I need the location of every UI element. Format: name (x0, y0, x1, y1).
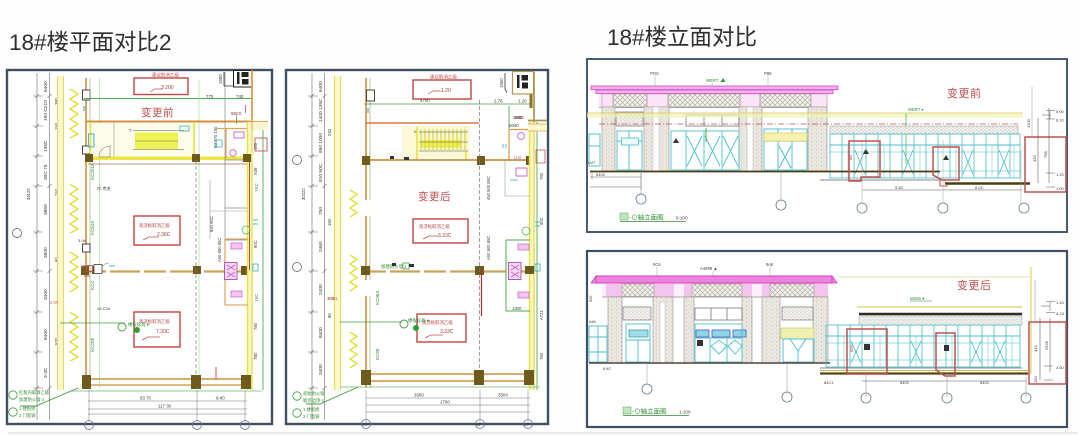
svg-text:910 50C: 910 50C (318, 163, 324, 182)
svg-text:1-6: 1-6 (475, 423, 480, 427)
svg-text:2400: 2400 (318, 284, 324, 295)
svg-text:A.10: A.10 (1056, 311, 1065, 316)
svg-text:变更后: 变更后 (957, 278, 992, 292)
svg-text:8:100: 8:100 (676, 216, 688, 221)
svg-text:A50 900 85C: A50 900 85C (486, 236, 491, 260)
svg-text:150 C210: 150 C210 (43, 100, 49, 121)
svg-text:5.00: 5.00 (1056, 109, 1065, 114)
svg-text:3850: 3850 (43, 204, 49, 215)
svg-text:9-8C: 9-8C (895, 185, 904, 190)
svg-text:780: 780 (253, 322, 258, 330)
svg-text:450 900 85C: 450 900 85C (486, 176, 491, 200)
svg-text:1200: 1200 (1026, 118, 1031, 128)
svg-text:现浇板取消乙级: 现浇板取消乙级 (419, 223, 450, 230)
svg-text:9-80: 9-80 (216, 396, 225, 401)
svg-text:1.20: 1.20 (518, 99, 527, 104)
svg-text:3504: 3504 (498, 393, 508, 398)
svg-text:B3 870 150: B3 870 150 (213, 126, 218, 148)
svg-text:1500: 1500 (499, 78, 504, 88)
svg-text:3400: 3400 (318, 364, 324, 375)
svg-text:KC2018: KC2018 (90, 163, 95, 180)
svg-text:740: 740 (236, 94, 244, 99)
svg-text:加建防火墙-1: 加建防火墙-1 (19, 396, 45, 403)
svg-text:KC208: KC208 (90, 338, 95, 352)
svg-text:A38: A38 (253, 167, 258, 175)
svg-text:(15): (15) (514, 155, 522, 160)
svg-text:150: 150 (327, 218, 332, 226)
svg-text:6400: 6400 (596, 172, 606, 177)
svg-text:1.10: 1.10 (1056, 300, 1065, 305)
svg-text:770: 770 (206, 94, 214, 99)
svg-text:红框内取消乙级: 红框内取消乙级 (19, 389, 50, 396)
svg-text:初始防火墙: 初始防火墙 (303, 390, 325, 397)
svg-text:LMT: LMT (588, 161, 596, 165)
svg-text:P88: P88 (764, 71, 772, 76)
svg-text:WERT: WERT (706, 78, 719, 83)
svg-text:758: 758 (1043, 151, 1048, 158)
svg-text:840C: 840C (980, 380, 990, 385)
svg-text:1.20: 1.20 (1056, 172, 1065, 177)
svg-text:KC4: KC4 (90, 281, 95, 290)
svg-text:39122: 39122 (26, 188, 31, 200)
svg-text:90: 90 (327, 313, 332, 318)
svg-text:750: 750 (539, 172, 544, 180)
svg-text:750: 750 (318, 207, 324, 215)
svg-text:楼板标高 ▾: 楼板标高 ▾ (408, 317, 429, 324)
svg-text:M256 ▾: M256 ▾ (910, 296, 924, 301)
svg-text:建议取消乙级: 建议取消乙级 (152, 72, 179, 79)
svg-text:1:100: 1:100 (679, 410, 691, 415)
svg-text:3600: 3600 (43, 247, 49, 258)
svg-text:7B0: 7B0 (253, 352, 258, 360)
svg-text:现浇板取消乙级: 现浇板取消乙级 (139, 222, 170, 229)
svg-text:2 门窗调: 2 门窗调 (303, 413, 319, 420)
svg-text:8400: 8400 (900, 380, 910, 385)
svg-text:板坯边顶-1: 板坯边顶-1 (303, 397, 325, 404)
svg-text:1.00: 1.00 (1056, 186, 1065, 191)
svg-text:A4B: A4B (589, 320, 596, 324)
svg-text:变更后: 变更后 (418, 190, 451, 203)
svg-text:8400: 8400 (43, 329, 49, 340)
svg-text:1500: 1500 (514, 115, 524, 120)
svg-text:5040: 5040 (509, 123, 519, 128)
svg-text:18#楼立面对比: 18#楼立面对比 (607, 25, 757, 50)
svg-text:950 1000: 950 1000 (318, 133, 324, 153)
svg-text:3500: 3500 (414, 393, 424, 398)
svg-text:-⊙轴立面图: -⊙轴立面图 (629, 213, 664, 222)
svg-text:2 门窗调: 2 门窗调 (19, 412, 35, 419)
svg-text:1500: 1500 (218, 74, 223, 84)
svg-text:POS: POS (650, 71, 659, 76)
svg-text:30C 75: 30C 75 (43, 164, 49, 180)
svg-text:9o8: 9o8 (766, 262, 774, 267)
svg-text:2460: 2460 (318, 241, 324, 252)
svg-text:3.33C: 3.33C (438, 233, 452, 239)
svg-text:750: 750 (539, 352, 544, 360)
svg-text:-⊙轴立面图: -⊙轴立面图 (632, 407, 667, 416)
svg-text:1-5: 1-5 (362, 423, 367, 427)
svg-text:2.0#: 2.0# (50, 300, 59, 305)
svg-text:8 9C: 8 9C (603, 367, 611, 371)
svg-text:WERT ▾: WERT ▾ (908, 107, 923, 112)
svg-text:1.20: 1.20 (441, 88, 451, 94)
svg-text:93 70: 93 70 (140, 396, 152, 401)
svg-text:150: 150 (1033, 376, 1038, 383)
svg-text:1700: 1700 (440, 400, 450, 405)
svg-text:1 楼板修: 1 楼板修 (19, 405, 36, 412)
svg-text:1 楼板修: 1 楼板修 (303, 406, 320, 413)
svg-text:7: 7 (129, 128, 132, 133)
svg-text:117 30: 117 30 (158, 404, 172, 409)
svg-text:3.0#: 3.0# (78, 238, 87, 243)
svg-text:8-0C: 8-0C (975, 185, 984, 190)
svg-text:K: K (414, 129, 417, 134)
svg-text:7.30C: 7.30C (156, 329, 170, 335)
svg-text:84C1: 84C1 (824, 380, 834, 385)
svg-text:3-3C: 3-3C (43, 367, 49, 378)
svg-text:1400 135C: 1400 135C (318, 98, 324, 122)
svg-text:19-C2#: 19-C2# (97, 306, 111, 311)
svg-text:6400: 6400 (43, 81, 49, 92)
svg-text:变更前: 变更前 (947, 86, 982, 100)
svg-text:2928: 2928 (1044, 340, 1049, 350)
svg-text:3400: 3400 (43, 289, 49, 300)
svg-text:A50 900 85C: A50 900 85C (217, 238, 222, 262)
svg-text:3.33C: 3.33C (440, 329, 454, 335)
svg-text:楼板标高 ▾: 楼板标高 ▾ (128, 321, 149, 328)
svg-text:2.36C: 2.36C (157, 232, 171, 238)
svg-text:3.60: 3.60 (1056, 365, 1065, 370)
svg-text:8400: 8400 (318, 327, 324, 338)
svg-text:Y6C: Y6C (254, 294, 259, 302)
svg-text:1-7: 1-7 (524, 423, 529, 427)
svg-text:作-考虑: 作-考虑 (97, 185, 110, 191)
svg-text:2.0d1: 2.0d1 (327, 296, 338, 301)
svg-text:500: 500 (589, 296, 593, 302)
svg-text:1300: 1300 (512, 306, 522, 311)
svg-text:433: 433 (1033, 345, 1038, 352)
svg-text:KC98: KC98 (375, 348, 380, 360)
svg-text:M2: M2 (849, 155, 853, 160)
svg-text:850 90C: 850 90C (209, 216, 214, 232)
svg-text:建议取消乙级: 建议取消乙级 (430, 74, 457, 81)
svg-text:3 200: 3 200 (161, 85, 174, 91)
svg-text:YKC: YKC (254, 183, 259, 192)
svg-text:KC363: KC363 (375, 291, 380, 305)
svg-text:90C: 90C (539, 217, 544, 225)
svg-text:135C: 135C (43, 140, 49, 152)
svg-text:6.10: 6.10 (1056, 118, 1065, 123)
svg-text:KC610: KC610 (90, 221, 95, 235)
svg-text:2.76: 2.76 (494, 99, 503, 104)
svg-text:变更前: 变更前 (141, 106, 174, 119)
svg-text:6400: 6400 (318, 81, 324, 92)
svg-text:150: 150 (253, 142, 258, 150)
svg-text:4700: 4700 (420, 98, 430, 103)
svg-text:30222: 30222 (301, 188, 306, 200)
svg-text:240: 240 (327, 128, 332, 136)
svg-text:M2B: M2B (850, 344, 854, 352)
svg-text:9C6: 9C6 (653, 262, 661, 267)
svg-text:433: 433 (1032, 155, 1037, 162)
svg-text:18#楼平面对比2: 18#楼平面对比2 (9, 30, 172, 55)
svg-text:90C: 90C (253, 240, 258, 248)
svg-text:A721: A721 (539, 310, 544, 320)
svg-text:A4699 ▲: A4699 ▲ (700, 266, 717, 271)
